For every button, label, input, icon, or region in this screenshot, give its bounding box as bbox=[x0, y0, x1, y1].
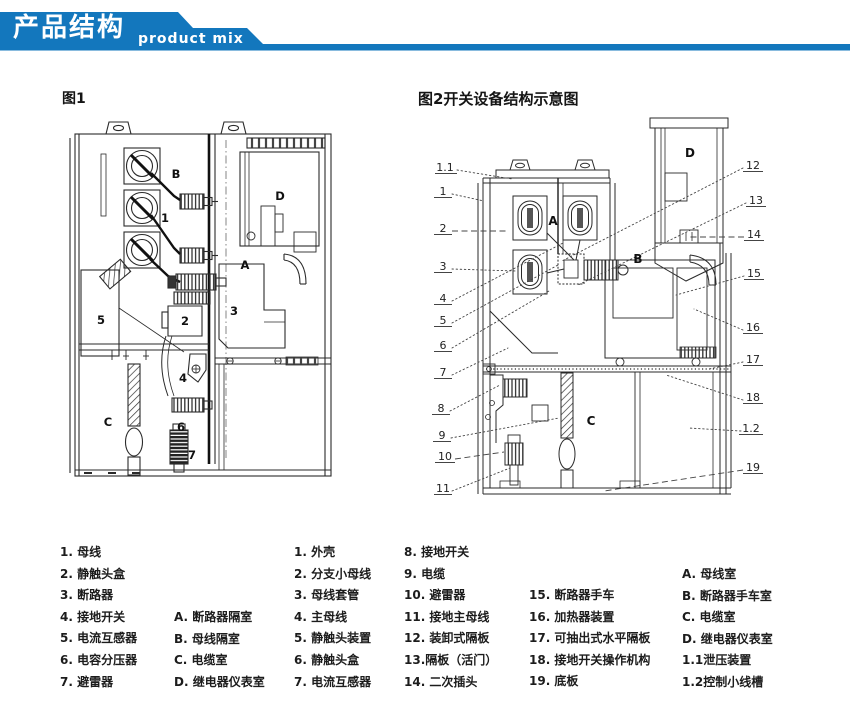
legend-item: 8. 接地开关 bbox=[404, 542, 497, 564]
page-subtitle: product mix bbox=[138, 31, 244, 47]
legend-item: 6. 电容分压器 bbox=[60, 650, 137, 672]
fig2-callout-1_2: 1.2 bbox=[742, 422, 760, 435]
fig1-label-1: 1 bbox=[161, 211, 169, 225]
fig1-label-3: 3 bbox=[230, 304, 238, 318]
legend-item: 6. 静触头盒 bbox=[294, 650, 371, 672]
legend-item: 7. 电流互感器 bbox=[294, 672, 371, 694]
legend-item: B. 断路器手车室 bbox=[682, 586, 773, 608]
legend-item: 4. 接地开关 bbox=[60, 607, 137, 629]
legend-item: 11. 接地主母线 bbox=[404, 607, 497, 629]
fig2-callout-8: 8 bbox=[438, 402, 445, 415]
legend-fig2-items-c: 15. 断路器手车 16. 加热器装置 17. 可抽出式水平隔板 18. 接地开… bbox=[529, 585, 650, 693]
fig1-part-labels: B 1 D A 5 2 3 4 C 6 7 bbox=[97, 167, 285, 462]
fig2-callout-14: 14 bbox=[747, 228, 761, 241]
legend-item: 3. 母线套管 bbox=[294, 585, 371, 607]
fig2-callout-11: 11 bbox=[436, 482, 450, 495]
legend-item: A. 断路器隔室 bbox=[174, 607, 265, 629]
legend-item: 16. 加热器装置 bbox=[529, 607, 650, 629]
fig2-callout-19: 19 bbox=[746, 461, 760, 474]
fig2-callout-10: 10 bbox=[438, 450, 452, 463]
fig2-callout-17: 17 bbox=[746, 353, 760, 366]
legend-item: C. 电缆室 bbox=[174, 650, 265, 672]
header-banner bbox=[0, 0, 850, 56]
legend-item: 1. 母线 bbox=[60, 542, 137, 564]
legend-item: 7. 避雷器 bbox=[60, 672, 137, 694]
fig1-label-D: D bbox=[275, 189, 285, 203]
fig1-label-5: 5 bbox=[97, 313, 105, 327]
fig2-label-D: D bbox=[685, 146, 695, 160]
legend-fig2-items-a: 1. 外壳 2. 分支小母线 3. 母线套管 4. 主母线 5. 静触头装置 6… bbox=[294, 542, 371, 693]
legend-item: 19. 底板 bbox=[529, 671, 650, 693]
fig2-callout-15: 15 bbox=[747, 267, 761, 280]
fig2-callout-4: 4 bbox=[440, 292, 447, 305]
fig2-callout-6: 6 bbox=[440, 339, 447, 352]
page-title: 产品结构 bbox=[13, 14, 125, 42]
fig1-label-2: 2 bbox=[181, 314, 189, 328]
legend-item: 12. 装卸式隔板 bbox=[404, 628, 497, 650]
legend-item: A. 母线室 bbox=[682, 564, 773, 586]
legend-fig1-items: 1. 母线 2. 静触头盒 3. 断路器 4. 接地开关 5. 电流互感器 6.… bbox=[60, 542, 137, 693]
fig2-callout-16: 16 bbox=[746, 321, 760, 334]
legend-item: 4. 主母线 bbox=[294, 607, 371, 629]
legend-item: 5. 静触头装置 bbox=[294, 628, 371, 650]
fig1-label-7: 7 bbox=[188, 448, 196, 462]
legend-item: 1.2控制小线槽 bbox=[682, 672, 773, 694]
fig1-label-4: 4 bbox=[179, 371, 187, 385]
fig2-label-C: C bbox=[587, 414, 596, 428]
fig2-callout-13: 13 bbox=[749, 194, 763, 207]
legend-item: 14. 二次插头 bbox=[404, 672, 497, 694]
fig2-callouts-right: 12 13 14 15 16 17 18 1.2 19 bbox=[742, 159, 763, 474]
fig2-callout-18: 18 bbox=[746, 391, 760, 404]
legend-item: 2. 静触头盒 bbox=[60, 564, 137, 586]
fig1-caption: 图1 bbox=[62, 88, 86, 108]
legend-item: 13.隔板（活门） bbox=[404, 650, 497, 672]
fig2-callout-12: 12 bbox=[746, 159, 760, 172]
fig2-linework bbox=[478, 118, 731, 494]
legend-item: D. 继电器仪表室 bbox=[682, 629, 773, 651]
legend-item: 1. 外壳 bbox=[294, 542, 371, 564]
legend-item: D. 继电器仪表室 bbox=[174, 672, 265, 694]
fig2-callout-7: 7 bbox=[440, 366, 447, 379]
fig1-diagram: B 1 D A 5 2 3 4 C 6 7 bbox=[68, 112, 340, 500]
fig2-callout-1_1: 1.1 bbox=[436, 161, 454, 174]
fig2-callout-2: 2 bbox=[440, 222, 447, 235]
legend-item: B. 母线隔室 bbox=[174, 629, 265, 651]
legend-item: 1.1泄压装置 bbox=[682, 650, 773, 672]
legend-item: 10. 避雷器 bbox=[404, 585, 497, 607]
fig2-callout-9: 9 bbox=[439, 429, 446, 442]
fig1-label-6: 6 bbox=[177, 420, 185, 434]
legend-fig2-items-b: 8. 接地开关 9. 电缆 10. 避雷器 11. 接地主母线 12. 装卸式隔… bbox=[404, 542, 497, 693]
fig1-label-B: B bbox=[172, 167, 181, 181]
legend-item: 15. 断路器手车 bbox=[529, 585, 650, 607]
fig2-label-A: A bbox=[548, 214, 558, 228]
legend-item: 17. 可抽出式水平隔板 bbox=[529, 628, 650, 650]
legend-item: 9. 电缆 bbox=[404, 564, 497, 586]
fig1-label-C: C bbox=[104, 415, 112, 429]
fig2-leader-lines bbox=[432, 168, 766, 495]
fig2-diagram: 1.1 1 2 3 4 5 6 7 8 9 10 11 12 13 14 15 … bbox=[424, 113, 776, 515]
page: { "header": { "title_zh": "产品结构", "title… bbox=[0, 0, 850, 728]
legend-item: 2. 分支小母线 bbox=[294, 564, 371, 586]
legend-fig2-compartments: A. 母线室 B. 断路器手车室 C. 电缆室 D. 继电器仪表室 1.1泄压装… bbox=[682, 564, 773, 694]
fig2-callout-3: 3 bbox=[440, 260, 447, 273]
fig2-label-B: B bbox=[633, 252, 642, 266]
legend-item: 18. 接地开关操作机构 bbox=[529, 650, 650, 672]
legend-item: 3. 断路器 bbox=[60, 585, 137, 607]
legend-item: 5. 电流互感器 bbox=[60, 628, 137, 650]
fig1-label-A: A bbox=[241, 258, 250, 272]
legend-item: C. 电缆室 bbox=[682, 607, 773, 629]
fig2-callout-5: 5 bbox=[440, 314, 447, 327]
fig2-callout-1: 1 bbox=[440, 185, 447, 198]
fig2-callouts-left: 1.1 1 2 3 4 5 6 7 8 9 10 11 bbox=[436, 161, 454, 495]
fig2-caption: 图2开关设备结构示意图 bbox=[418, 88, 578, 109]
legend-fig1-compartments: A. 断路器隔室 B. 母线隔室 C. 电缆室 D. 继电器仪表室 bbox=[174, 607, 265, 693]
